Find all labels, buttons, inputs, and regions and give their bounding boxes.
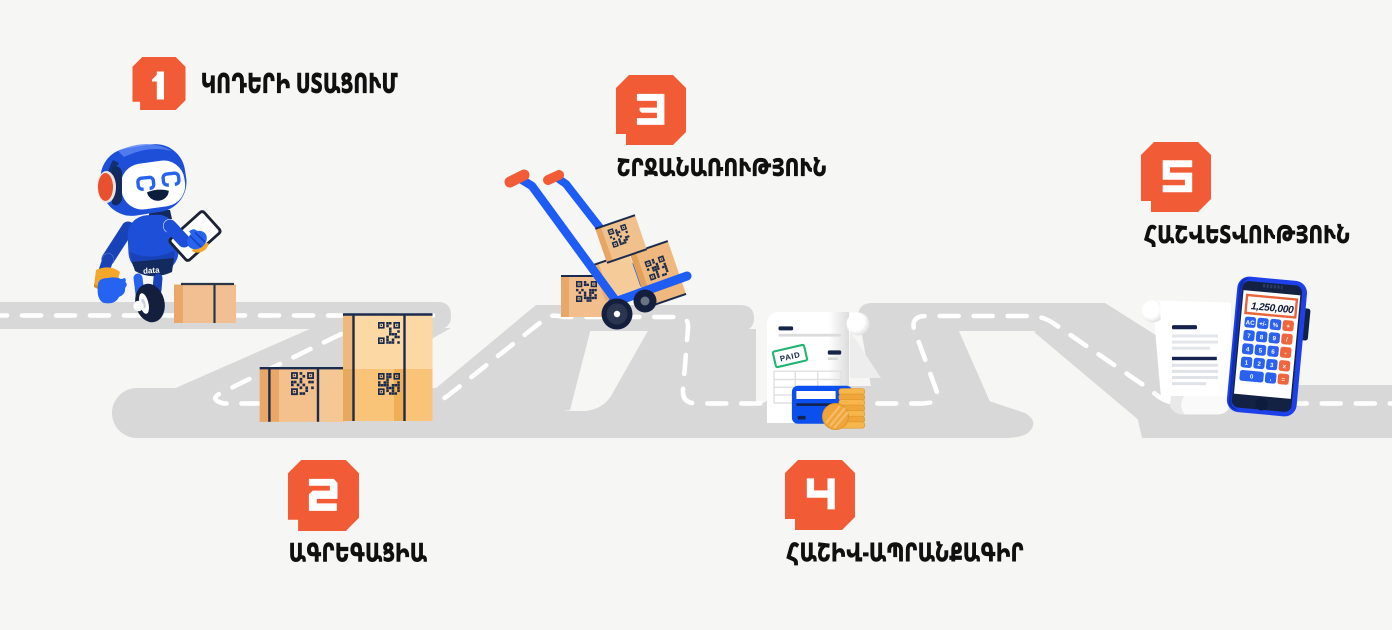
svg-text:+/-: +/- [1259,320,1267,328]
svg-text:AC: AC [1245,319,1255,327]
